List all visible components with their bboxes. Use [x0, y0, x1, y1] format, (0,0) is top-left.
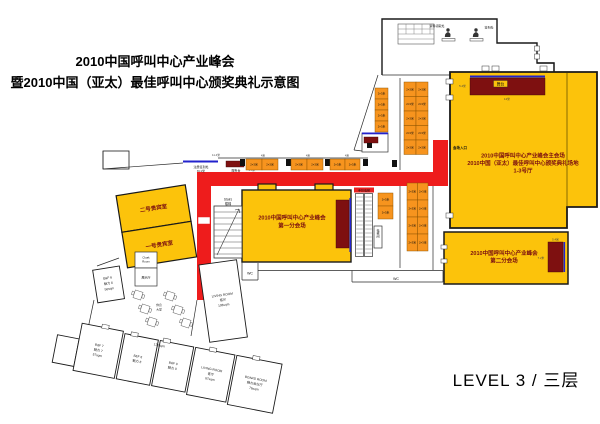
sub-venue-1-stage	[336, 200, 349, 248]
cloak-room: Cloak Room	[135, 252, 157, 268]
dim-label: 11.4米	[212, 153, 220, 157]
booth-size-label: 2×3米	[408, 241, 416, 245]
rest-area-label2: 大堂	[156, 308, 162, 312]
floor-plan-svg: 2010中国呼叫中心产业峰会 暨2010中国（亚太）最佳呼叫中心颁奖典礼示意图 …	[0, 0, 600, 424]
booth-size-label: 2×3米	[250, 163, 258, 167]
booth-size-label: 2×3米	[266, 163, 274, 167]
dim-label: 5.4米	[552, 238, 559, 242]
sub-venue-2-name-line1: 2010中国呼叫中心产业峰会	[470, 249, 538, 257]
booth-size-label: 2×3米	[418, 116, 426, 120]
special-display-box	[362, 133, 388, 153]
sub-venue-2: 5.4米 7.2米 2010中国呼叫中心产业峰会 第二分会场	[441, 232, 568, 284]
hall-entrance-label: 会场入口	[453, 145, 467, 150]
sub-venue-2-name-line2: 第二分会场	[490, 257, 518, 265]
stairs-label-cn: 楼梯	[225, 201, 232, 206]
booth-size-label: 2×3米	[406, 116, 414, 120]
booth-size-label: 2×3米	[378, 125, 386, 129]
page-title-line2: 暨2010中国（亚太）最佳呼叫中心颁奖典礼示意图	[11, 75, 300, 90]
booth-size-label: 2×3米	[419, 207, 427, 211]
main-hall-name-line3: 1-3号厅	[514, 167, 533, 175]
sub-venue-1-name-line1: 2010中国呼叫中心产业峰会	[258, 214, 326, 222]
dim-label: 4米	[345, 154, 350, 158]
elevator-label: 电梯间	[376, 228, 380, 239]
rest-area-label1: 休息	[156, 303, 162, 307]
signin-label: 签到处	[484, 25, 493, 30]
booth-size-label: 2×3米	[418, 131, 426, 135]
booth-size-label: 2×3米	[406, 145, 414, 149]
main-hall-name-line2: 2010中国（亚太）最佳呼叫中心颁奖典礼场地	[467, 159, 579, 167]
sub-venue-1: 2010中国呼叫中心产业峰会 第一分会场	[242, 184, 351, 262]
stage-label: 舞台	[497, 81, 505, 86]
booth-size-label: 2×3米	[295, 163, 303, 167]
stairs-label-en: Stairs	[224, 198, 233, 202]
stage-width-dim: 12米	[504, 97, 510, 101]
booth-size-label: 2×3米	[382, 211, 390, 215]
booth-size-label: 2×3米	[378, 103, 386, 107]
booth-size-label: 2×3米	[419, 224, 427, 228]
room-bf6: B&F 6 魅力 6 56sqm	[93, 266, 125, 303]
main-hall: 舞台 5.4米 12米 会场入口 2010中国呼叫中心产业峰会主会场 2010中…	[446, 63, 597, 228]
material-pickup-label: 资料领取处	[429, 23, 444, 28]
booth-size-label: 2×3米	[406, 102, 414, 106]
booth-size-label: 2×3米	[382, 198, 390, 202]
dim-label: 7.2米	[538, 256, 545, 260]
elevator-shaft: 电梯间	[374, 226, 382, 248]
registration-size-label: 8×1米	[197, 168, 205, 173]
sub-venue-2-stage	[548, 242, 563, 272]
booth-size-label: 2×3米	[418, 102, 426, 106]
booth-size-label: 2×3米	[406, 131, 414, 135]
display-room: 展示厅	[135, 268, 157, 286]
wc-label: WC	[247, 272, 253, 276]
booth-size-label: 2×3米	[378, 92, 386, 96]
display-room-label: 展示厅	[141, 275, 150, 280]
booth-size-label: 2×3米	[378, 114, 386, 118]
booth-size-label: 2×3米	[418, 145, 426, 149]
dim-label: 4米	[261, 154, 266, 158]
booth-size-label: 2×3米	[349, 163, 357, 167]
booth-size-label: 2×3米	[408, 224, 416, 228]
service-desk-label: 服务台	[231, 168, 240, 173]
wc-label: WC	[393, 277, 399, 281]
booth-size-label: 2×3米	[418, 87, 426, 91]
booth-size-label: 2×3米	[419, 190, 427, 194]
cloak-room-label2: Room	[142, 260, 150, 264]
main-hall-name-line1: 2010中国呼叫中心产业峰会主会场	[481, 152, 565, 160]
page-title-line1: 2010中国呼叫中心产业峰会	[76, 54, 236, 69]
booth-size-label: 2×3米	[408, 207, 416, 211]
stage-depth-dim: 5.4米	[459, 84, 466, 88]
dim-label: 4米	[306, 154, 311, 158]
booth-size-label: 2×3米	[419, 241, 427, 245]
booth-size-label: 2×3米	[334, 163, 342, 167]
sub-venue-1-name-line2: 第一分会场	[278, 222, 306, 230]
booth-size-label: 2×3米	[408, 190, 416, 194]
stage-backdrop-line	[470, 76, 545, 78]
stairs-icon: Stairs 楼梯	[214, 198, 242, 259]
level-label: LEVEL 3 / 三层	[453, 371, 580, 390]
booth-size-label: 2×3米	[311, 163, 319, 167]
floor-plan-page: 2010中国呼叫中心产业峰会 暨2010中国（亚太）最佳呼叫中心颁奖典礼示意图 …	[0, 0, 600, 424]
booth-size-label: 2×3米	[406, 87, 414, 91]
corridor-sign	[198, 217, 210, 224]
escalator-label: 手扶电梯	[358, 188, 370, 193]
